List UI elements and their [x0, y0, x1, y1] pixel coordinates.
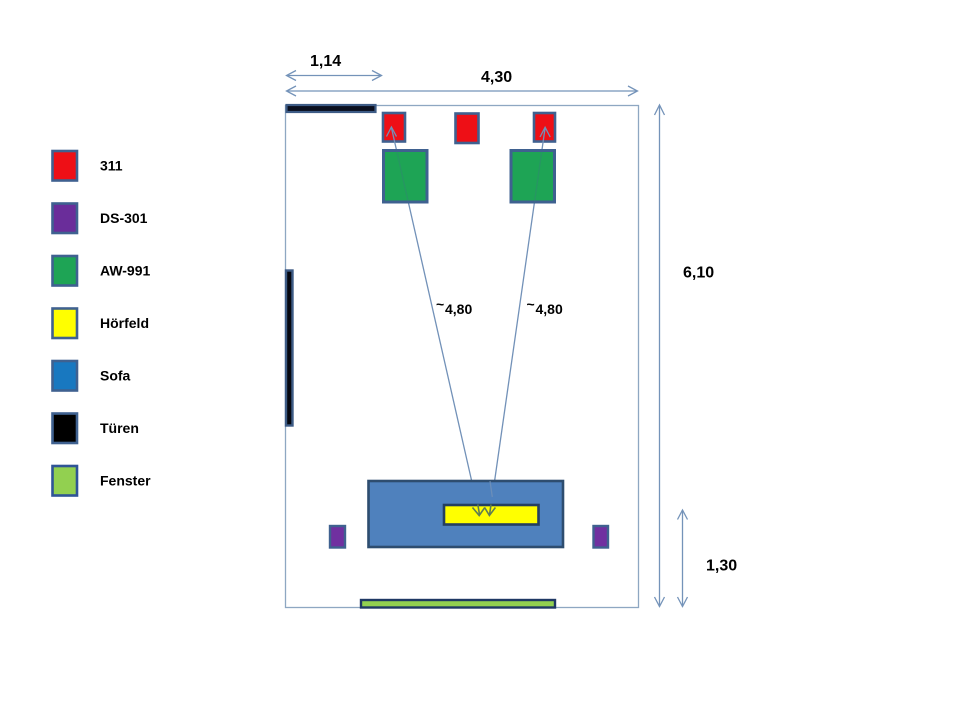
svg-text:~: ~ — [436, 296, 444, 312]
svg-text:1,14: 1,14 — [310, 53, 341, 70]
svg-text:Sofa: Sofa — [100, 368, 131, 384]
svg-text:Hörfeld: Hörfeld — [100, 315, 149, 331]
svg-text:6,10: 6,10 — [683, 265, 714, 282]
svg-text:4,80: 4,80 — [445, 301, 472, 317]
svg-text:Fenster: Fenster — [100, 473, 151, 489]
svg-text:4,80: 4,80 — [536, 301, 563, 317]
svg-text:311: 311 — [100, 158, 123, 174]
svg-text:DS-301: DS-301 — [100, 210, 148, 226]
svg-text:4,30: 4,30 — [481, 69, 512, 86]
svg-text:1,30: 1,30 — [706, 558, 737, 575]
svg-text:AW-991: AW-991 — [100, 263, 151, 279]
svg-text:~: ~ — [527, 296, 535, 312]
svg-text:Türen: Türen — [100, 420, 139, 436]
